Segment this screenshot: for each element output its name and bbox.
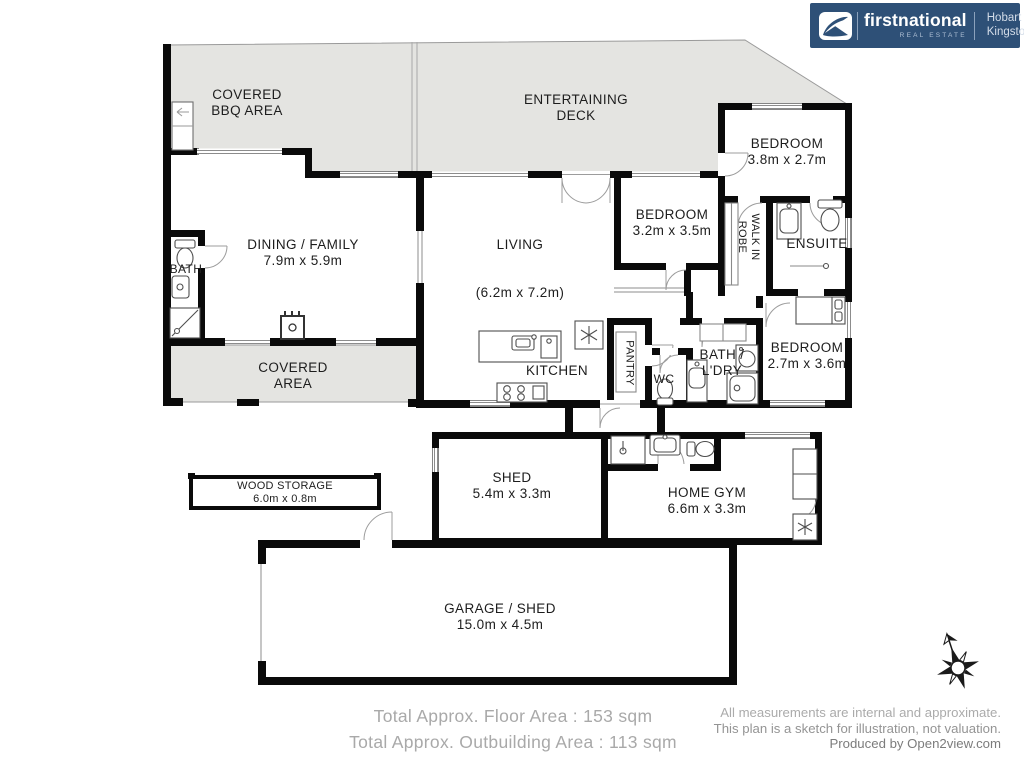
label-covered-area: COVEREDAREA — [258, 360, 328, 392]
logo-subtitle: REAL ESTATE — [864, 32, 967, 39]
stove-icon — [497, 383, 547, 402]
label-bedroom-3: BEDROOM2.7m x 3.6m — [768, 340, 847, 372]
gym-cabinet — [793, 449, 817, 499]
laundry-cupboard — [700, 324, 746, 341]
gym-toilet-icon — [687, 442, 714, 457]
disclaimer: All measurements are internal and approx… — [714, 705, 1001, 752]
gym-sink-icon — [650, 435, 680, 455]
disclaimer-line-1: All measurements are internal and approx… — [714, 705, 1001, 721]
wood-heater-icon — [281, 311, 304, 339]
ensuite-sink-icon — [777, 203, 801, 239]
label-shed: SHED5.4m x 3.3m — [473, 470, 552, 502]
fridge-icon — [575, 321, 603, 349]
label-dining-family: DINING / FAMILY7.9m x 5.9m — [247, 237, 359, 269]
label-ensuite: ENSUITE — [786, 236, 847, 252]
heater-unit-icon — [793, 514, 817, 540]
store-nook — [172, 102, 193, 150]
logo-divider-2 — [974, 12, 975, 40]
sink-icon — [172, 276, 189, 298]
logo-wordmark: firstnational REAL ESTATE — [864, 12, 967, 39]
disclaimer-line-2: This plan is a sketch for illustration, … — [714, 721, 1001, 737]
label-walk-in-robe: WALK INROBE — [735, 214, 761, 261]
total-floor-area: Total Approx. Floor Area : 153 sqm — [374, 706, 653, 727]
agency-logo: firstnational REAL ESTATE Hobart Kingsto… — [810, 3, 1020, 48]
compass-rose-icon — [926, 627, 986, 696]
bed-icon — [796, 297, 845, 324]
floor-plan-drawing — [0, 0, 1024, 768]
label-bath: BATH — [170, 262, 203, 276]
firstnational-swoosh-icon — [819, 12, 852, 40]
label-living-dims: (6.2m x 7.2m) — [476, 285, 564, 301]
producer-credit: Produced by Open2view.com — [714, 736, 1001, 752]
logo-name: firstnational — [864, 12, 967, 30]
label-bath-ldry: BATH /L'DRY — [700, 347, 745, 379]
label-home-gym: HOME GYM6.6m x 3.3m — [668, 485, 747, 517]
label-wood-storage: WOOD STORAGE6.0m x 0.8m — [237, 480, 333, 506]
towel-rail — [790, 264, 829, 269]
shower-icon — [170, 308, 200, 338]
label-bedroom-2: BEDROOM3.2m x 3.5m — [633, 207, 712, 239]
label-bedroom-1: BEDROOM3.8m x 2.7m — [748, 136, 827, 168]
label-living: LIVING — [497, 237, 544, 253]
total-outbuilding-area: Total Approx. Outbuilding Area : 113 sqm — [349, 732, 677, 753]
gym-shower-icon — [611, 436, 645, 464]
kitchen-island — [479, 331, 561, 362]
ensuite-toilet-icon — [818, 200, 842, 231]
label-kitchen: KITCHEN — [526, 363, 588, 379]
floorplan-page: COVEREDBBQ AREA ENTERTAININGDECK BEDROOM… — [0, 0, 1024, 768]
label-wc: WC — [654, 372, 675, 386]
label-pantry: PANTRY — [623, 340, 636, 385]
office-name: Hobart Kingston — [987, 12, 1024, 38]
label-entertaining-deck: ENTERTAININGDECK — [524, 92, 628, 124]
logo-divider — [857, 12, 858, 40]
label-covered-bbq-area: COVEREDBBQ AREA — [211, 87, 282, 119]
label-garage-shed: GARAGE / SHED15.0m x 4.5m — [444, 601, 556, 633]
